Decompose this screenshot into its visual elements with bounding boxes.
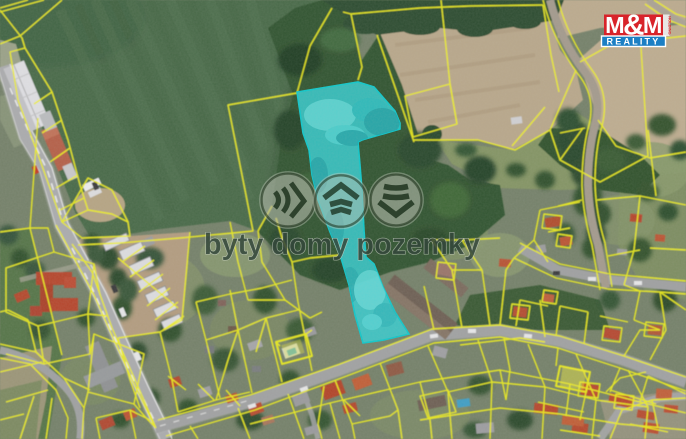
svg-text:HOLDING: HOLDING (667, 16, 672, 34)
svg-text:REALITY: REALITY (607, 36, 661, 46)
svg-text:byty domy pozemky: byty domy pozemky (204, 228, 480, 261)
